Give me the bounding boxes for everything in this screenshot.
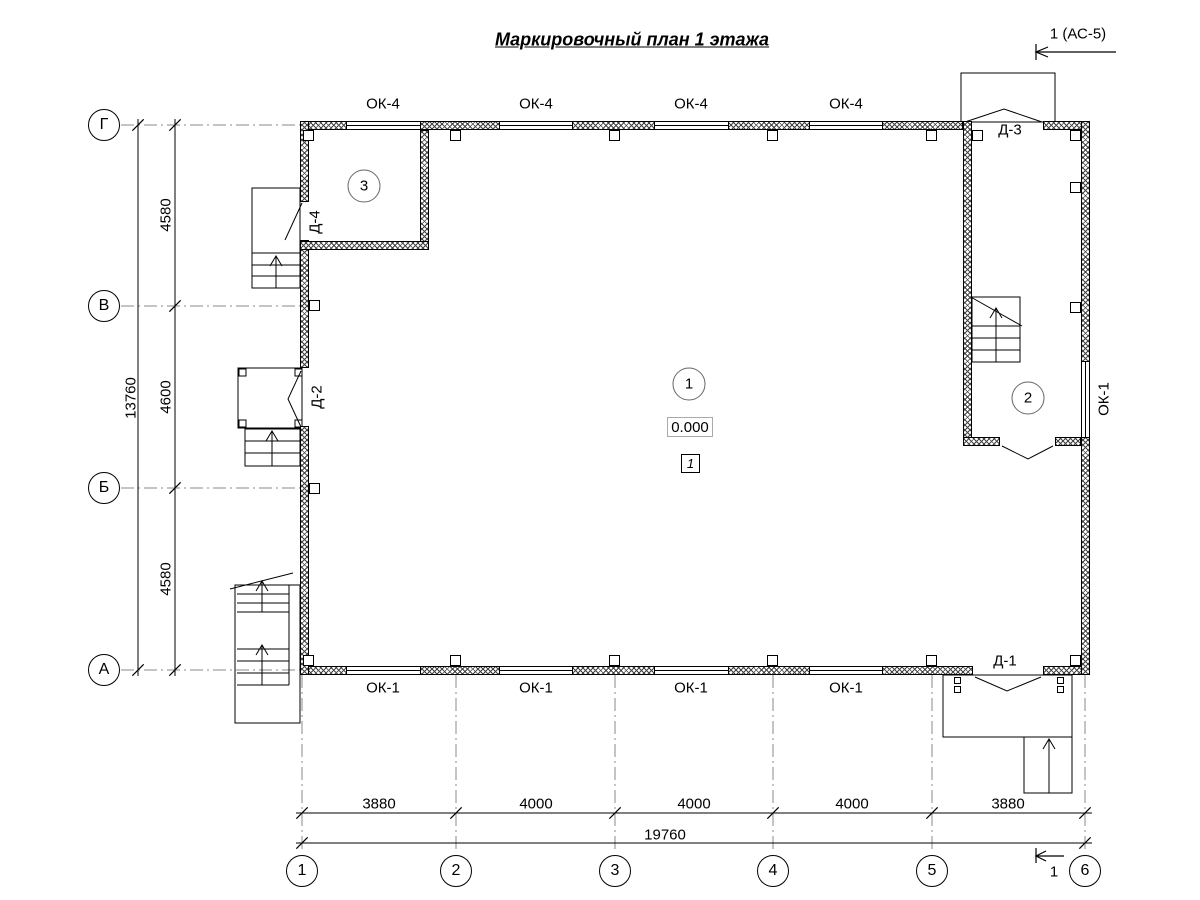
axis-col-6: 6 [1069,855,1101,887]
room-marker-3: 3 [348,170,381,203]
axis-row-a: А [88,654,120,686]
dim-bottom-seg: 3880 [991,797,1024,812]
window-ok1-4 [810,666,882,675]
window-label-ok4: ОК-4 [829,97,863,112]
wall-top-pier [882,121,963,130]
landing-d4 [252,188,300,253]
wall-top-pier [572,121,655,130]
door-frame-mark [1057,677,1064,684]
stairs-linework [230,256,1055,793]
door-swings [285,109,1053,691]
pilaster [609,130,620,141]
pilaster [309,300,320,311]
pilaster [1070,655,1081,666]
pilaster [450,130,461,141]
steps-d1 [1024,737,1072,793]
section-mark-top-label: 1 (АС-5) [1050,27,1106,42]
axis-row-g: Г [88,109,120,141]
window-ok1-1 [347,666,420,675]
window-ok1-2 [500,666,572,675]
axis-row-v: В [88,290,120,322]
window-label-ok1: ОК-1 [674,681,708,696]
dim-left-seg: 4580 [159,198,174,231]
pilaster [609,655,620,666]
pilaster [1070,302,1081,313]
axis-row-b: Б [88,472,120,504]
wall-left-segment [300,426,309,675]
wall-bottom-pier [882,666,973,675]
wall-bottom-pier [420,666,500,675]
window-label-ok4: ОК-4 [674,97,708,112]
window-ok4-2 [500,121,572,130]
axis-col-5: 5 [916,855,948,887]
door-label-d2: Д-2 [310,385,325,409]
dim-bottom-seg: 4000 [677,797,710,812]
wall-top-pier [420,121,500,130]
dim-left-total: 13760 [124,377,139,419]
wall-room2-left [963,121,972,446]
window-ok4-4 [810,121,882,130]
pilaster [303,130,314,141]
pilaster [450,655,461,666]
pilaster [926,130,937,141]
dim-left-seg: 4600 [159,380,174,413]
wall-room2-bottom [963,437,1000,446]
wall-right-segment [1081,121,1090,362]
door-label-d1: Д-1 [993,654,1017,669]
wall-room2-bottom [1055,437,1081,446]
pilaster [972,130,983,141]
wall-left-segment [300,240,309,368]
section-mark-bottom-label: 1 [1050,865,1058,880]
floor-plan-canvas: Маркировочный план 1 этажа 1 (АС-5) 1 ОК… [0,0,1200,900]
pilaster [303,655,314,666]
window-label-ok1: ОК-1 [366,681,400,696]
dim-left-seg: 4580 [159,562,174,595]
pilaster [1070,182,1081,193]
pilaster [926,655,937,666]
pilaster [767,655,778,666]
pilaster [767,130,778,141]
door-label-d3: Д-3 [998,123,1022,138]
dim-bottom-total: 19760 [644,828,686,843]
door-label-d4: Д-4 [308,210,323,234]
room-marker-2: 2 [1012,382,1045,415]
axis-col-2: 2 [440,855,472,887]
plan-title: Маркировочный план 1 этажа [495,30,769,51]
window-ok1-right [1081,362,1090,437]
wall-room3-right [420,130,429,250]
wall-room3-bottom [300,241,429,250]
dim-bottom-seg: 4000 [519,797,552,812]
window-ok4-1 [347,121,420,130]
window-label-ok4: ОК-4 [519,97,553,112]
wall-top-pier [728,121,810,130]
wall-bottom-pier [728,666,810,675]
axis-col-4: 4 [757,855,789,887]
window-label-ok1-right: ОК-1 [1097,382,1112,416]
door-frame-mark [1057,686,1064,693]
wall-right-segment [1081,437,1090,675]
window-ok4-3 [655,121,728,130]
wall-bottom-pier [572,666,655,675]
window-label-ok4: ОК-4 [366,97,400,112]
door-frame-mark [954,686,961,693]
door-frame-mark [954,677,961,684]
pilaster [1070,130,1081,141]
axis-col-3: 3 [599,855,631,887]
porch-d3 [961,73,1055,122]
door-swing-room2 [1002,446,1053,459]
elevation-mark: 0.000 [667,417,713,437]
window-label-ok1: ОК-1 [829,681,863,696]
room-marker-1: 1 [673,368,706,401]
dim-bottom-seg: 3880 [362,797,395,812]
plan-note-box: 1 [681,454,700,473]
pilaster [309,483,320,494]
window-ok1-3 [655,666,728,675]
axis-col-1: 1 [286,855,318,887]
window-label-ok1: ОК-1 [519,681,553,696]
porch-d2 [238,368,302,428]
porch-d1 [943,675,1072,737]
dim-bottom-seg: 4000 [835,797,868,812]
